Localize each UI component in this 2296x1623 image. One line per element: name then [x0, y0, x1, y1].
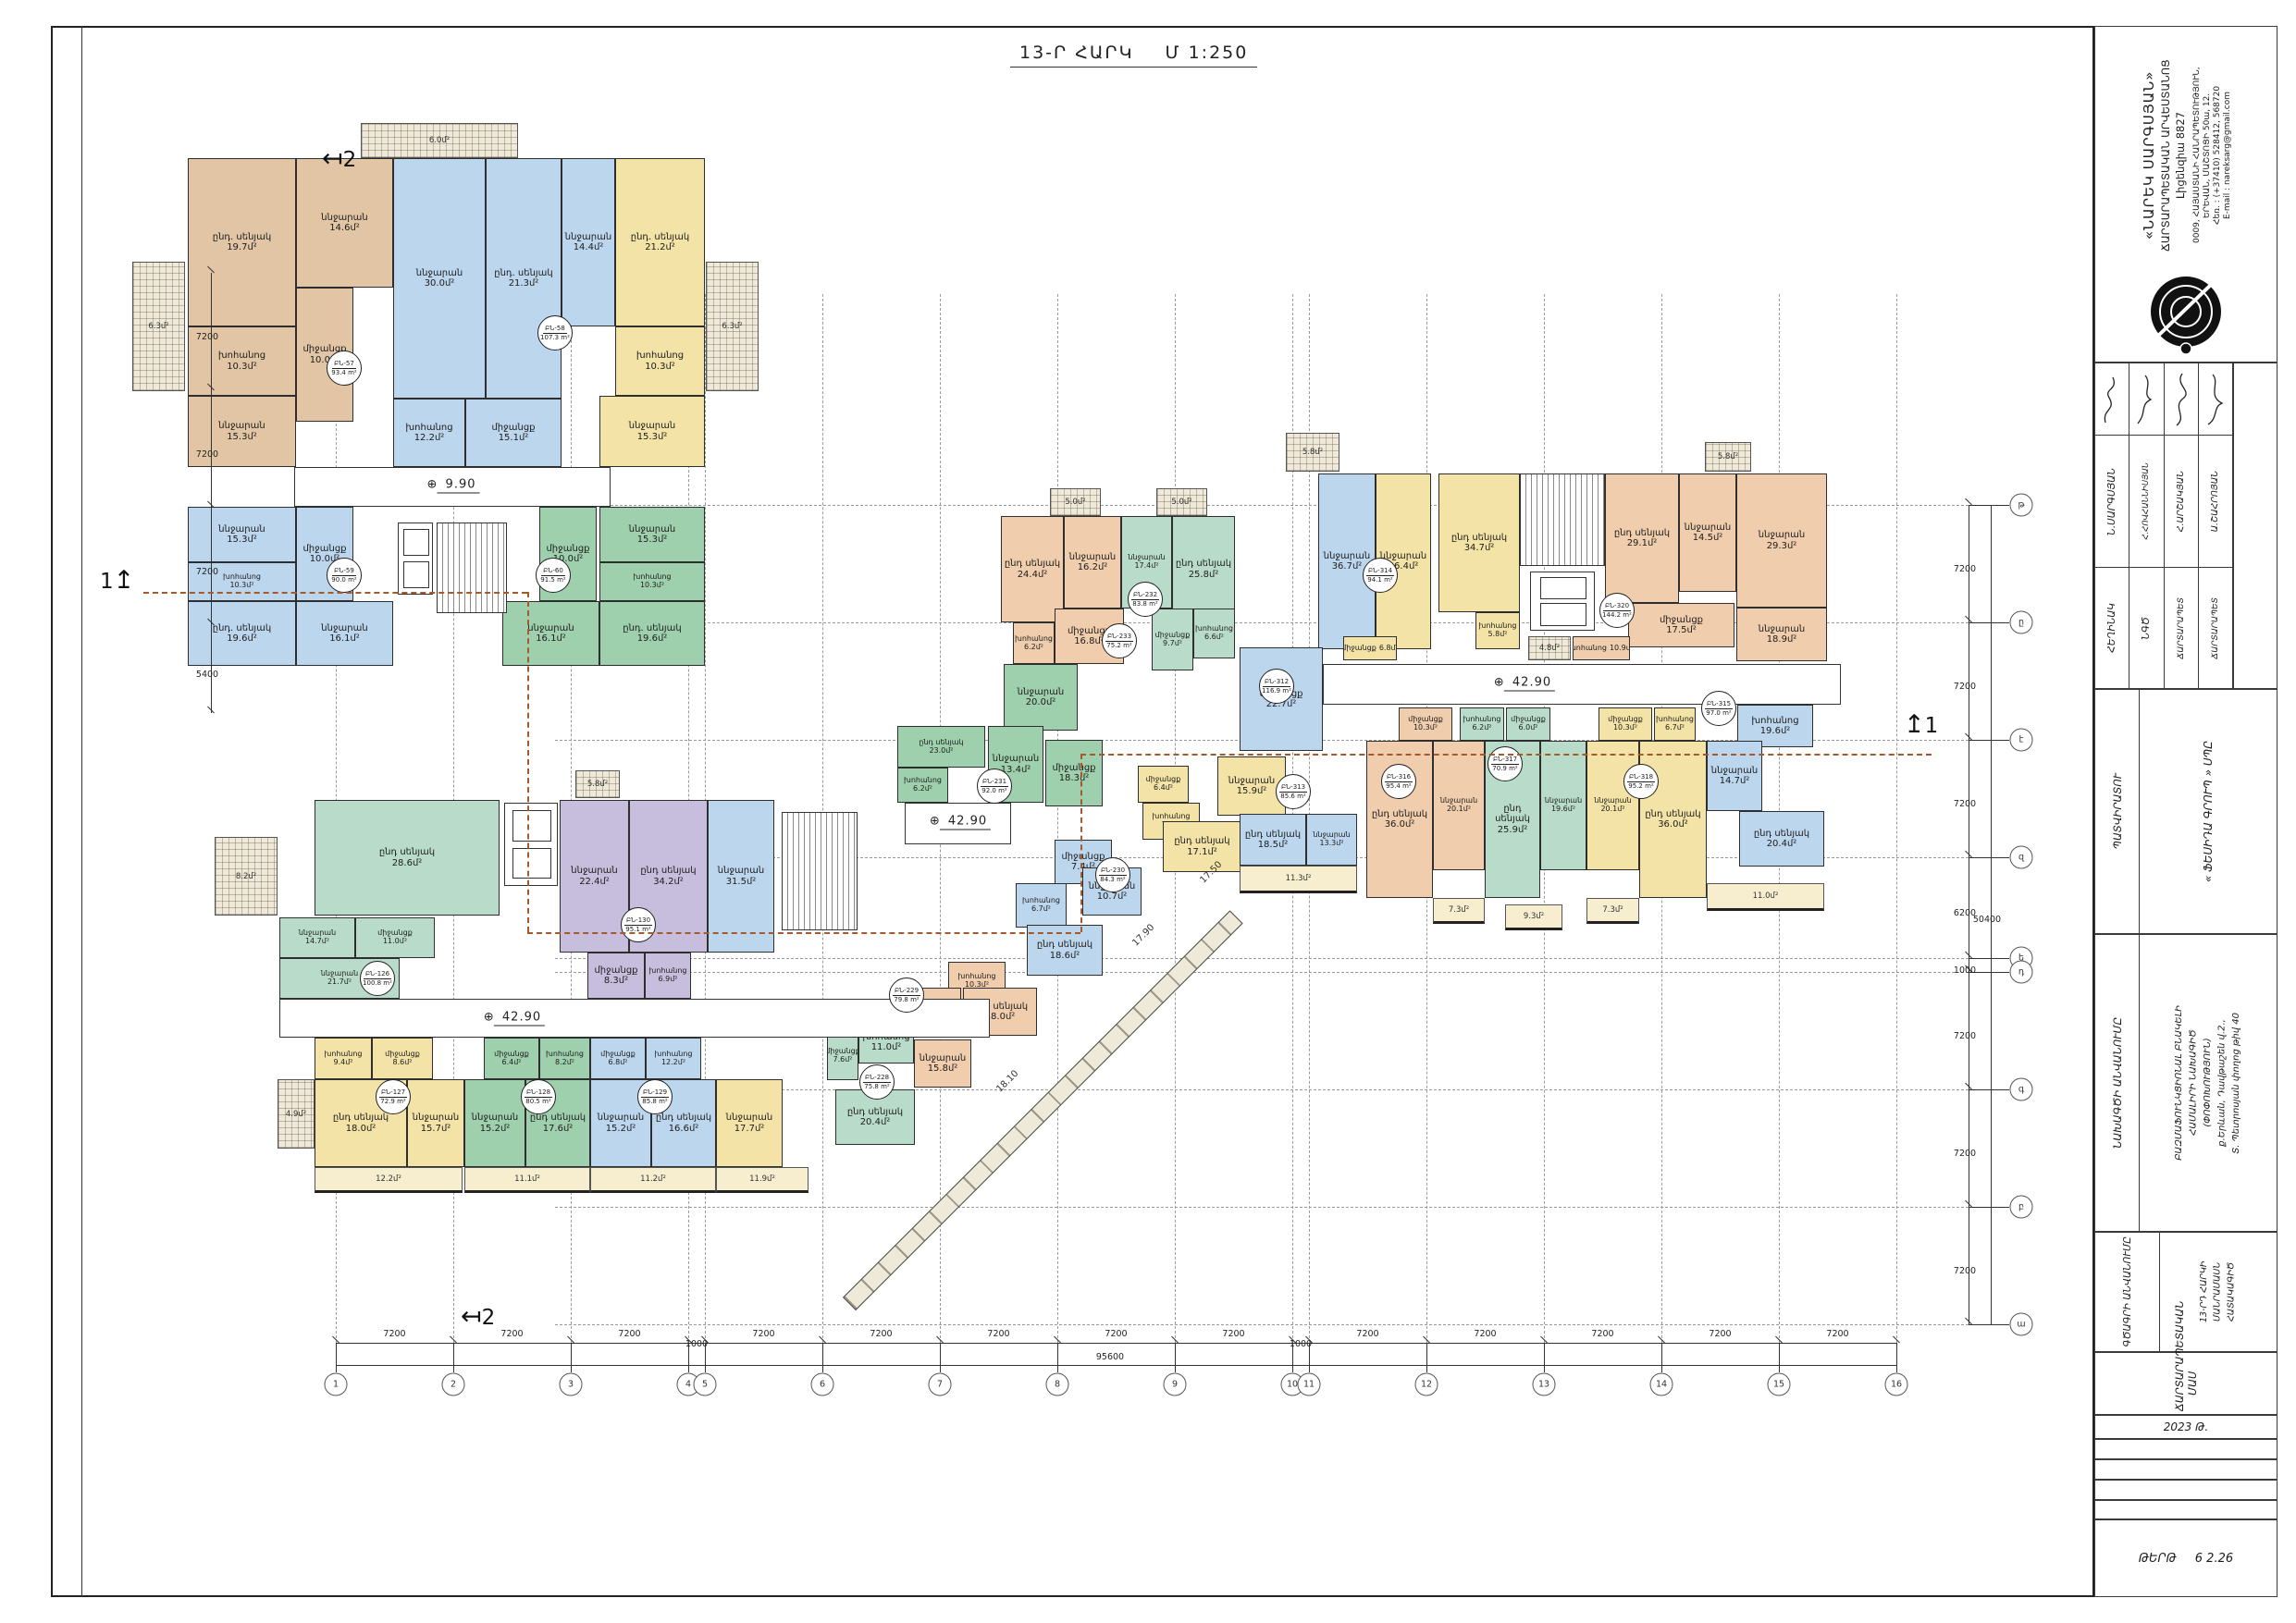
apartment-circle: ԲՆ-22979.8 m²	[889, 977, 924, 1013]
project-name: ԲԱԶՄԱՖՈՒՆԿՑԻՈՆԱԼ ԲՆԱԿԵԼԻ ՀԱՄԱԼԻՐԻ ՆԱԽԱԳԻ…	[2140, 935, 2277, 1231]
apartment-area: 72.9 m²	[380, 1098, 405, 1106]
person-role: ՃԱՐՏԱՐԱՊԵՏ	[2165, 568, 2198, 688]
apartment-area: 95.4 m²	[1386, 782, 1411, 791]
elevation-marker: ⊕ 9.90	[427, 478, 480, 492]
client-value: « ՖԵՍԻԴԱ ԳՐՈՒՊ » ՍՊԸ	[2140, 690, 2277, 933]
room-name: ննջարան	[1069, 552, 1116, 562]
apartment-circle: ԲՆ-31770.9 m²	[1487, 746, 1523, 781]
room-area: 6.8մ²	[609, 1059, 628, 1067]
balcony: 11.0մ²	[1707, 883, 1824, 911]
room: ննջարան20.1մ²	[1586, 741, 1639, 870]
room-name: խոհանոց	[636, 350, 684, 361]
apartment-circle: ԲՆ-31385.6 m²	[1276, 774, 1311, 809]
room: ննջարան16.1մ²	[502, 601, 599, 666]
room: ննջարան31.5մ²	[708, 800, 774, 953]
room-name: ննջարան	[218, 524, 265, 535]
dimension-label: 7200	[383, 1329, 405, 1339]
room: ննջարան36.7մ²	[1318, 473, 1376, 649]
elevator-cab	[512, 848, 550, 879]
grid-bubble: բ	[2010, 1196, 2033, 1219]
apartment-area: 84.3 m²	[1100, 876, 1125, 884]
room: միջանցք8.6մ²	[372, 1038, 433, 1079]
room-name: ննջարան	[598, 1113, 644, 1123]
room: ընդ. սենյակ19.6մ²	[599, 601, 705, 666]
room: միջանցք7.6մ²	[827, 1032, 858, 1080]
room-area: 18.6մ²	[1050, 951, 1080, 961]
elevation-symbol: ⊕	[484, 1011, 494, 1025]
elevation-marker: ⊕ 42.90	[930, 815, 991, 829]
room: ընդ սենյակ25.8մ²	[1172, 516, 1235, 622]
grid-extension	[1544, 1343, 1545, 1372]
room-area: 25.9մ²	[1498, 825, 1528, 835]
room-area: 10.3մ²	[640, 582, 664, 590]
dimension-label: 7200	[1474, 1329, 1496, 1339]
drawing-label: ԳԾԱԳՐԻ ԱՆՎԱՆՈՒՄԸ	[2095, 1233, 2160, 1351]
room: միջանցք11.0մ²	[355, 917, 435, 958]
room: ընդ. սենյակ19.6մ²	[188, 601, 296, 666]
room: ընդ. սենյակ19.7մ²	[188, 158, 296, 326]
signature-cell	[2129, 363, 2163, 436]
company-name: «ՆԱՐԵԿ ՍԱՐԳՍՅԱՆ»	[2141, 34, 2157, 277]
balcony: 5.0մ²	[1156, 488, 1207, 516]
apartment-circle: ԲՆ-22875.8 m²	[859, 1064, 895, 1100]
room-name: ննջարան	[726, 1113, 772, 1123]
room: խոհանոց6.2մ²	[897, 768, 948, 803]
room-area: 11.0մ²	[871, 1042, 902, 1052]
room-area: 15.1մ²	[499, 433, 529, 443]
room: ննջարան29.3մ²	[1736, 473, 1827, 608]
dimension-label: 5400	[196, 670, 218, 680]
person-column: Հ.ՀՈՎՀԱՆՆԻՍՅԱՆ ՆԳԾ	[2129, 363, 2164, 688]
room-area: 31.5մ²	[726, 877, 757, 887]
room: ննջարան14.4մ²	[562, 158, 615, 326]
room-name: ննջարան	[1018, 687, 1064, 697]
room-area: 17.7մ²	[734, 1124, 765, 1134]
grid-line-vertical	[1896, 294, 1897, 1343]
year-box: 2023 Թ.	[2094, 1415, 2277, 1439]
phone: Հեռ. : (+37410) 528412, 568720	[2213, 34, 2222, 277]
apartment-area: 90.0 m²	[331, 576, 356, 584]
room: ընդ սենյակ17.1մ²	[1163, 821, 1241, 872]
room-name: խոհանոց	[1573, 645, 1607, 653]
room-area: 18.5մ²	[1258, 840, 1289, 850]
drawing-sheet: 13-Ր ՀԱՐԿՄ 1:250 12345678910111213141516…	[0, 0, 2296, 1623]
apartment-area: 85.8 m²	[642, 1098, 667, 1106]
room-name: ննջարան	[1759, 530, 1805, 540]
room: միջանցք8.3մ²	[587, 953, 645, 999]
section-number: 2	[343, 148, 357, 172]
room-name: ննջարան	[1711, 766, 1758, 776]
room: միջանցք18.3մ²	[1045, 740, 1103, 806]
room-area: 16.1մ²	[329, 633, 360, 644]
grid-line-horizontal	[555, 958, 1969, 959]
section-cut-line	[527, 932, 1080, 934]
room: խոհանոց6.2մ²	[1013, 622, 1055, 664]
room-area: 7.6մ²	[833, 1056, 853, 1064]
room: միջանցք15.1մ²	[465, 399, 562, 467]
room-area: 12.2մ²	[414, 433, 445, 443]
balcony: 9.3մ²	[1505, 904, 1562, 930]
corridor	[279, 999, 990, 1038]
apartment-id: ԲՆ-312	[1263, 678, 1290, 687]
room-area: 20.1մ²	[1600, 805, 1624, 814]
grid-bubble: 3	[560, 1373, 583, 1396]
elevation-symbol: ⊕	[427, 478, 438, 492]
room-area: 12.2մ²	[661, 1059, 685, 1067]
room-area: 6.8մ²	[1379, 645, 1397, 653]
grid-bubble: 8	[1046, 1373, 1069, 1396]
apartment-area: 85.6 m²	[1280, 793, 1305, 801]
apartment-area: 75.2 m²	[1106, 642, 1131, 650]
apartment-circle: ԲՆ-126100.8 m²	[360, 961, 395, 996]
apartment-id: ԲՆ-233	[1105, 633, 1133, 642]
room: ընդ սենյակ24.4մ²	[1001, 516, 1064, 622]
grid-extension	[1057, 1343, 1058, 1372]
room: ննջարան15.3մ²	[599, 507, 705, 562]
apartment-area: 94.1 m²	[1367, 576, 1392, 584]
room-name: միջանցք	[1343, 645, 1376, 653]
room-area: 6.4մ²	[502, 1059, 522, 1067]
room-area: 15.7մ²	[421, 1124, 451, 1134]
room-area: 19.7մ²	[227, 242, 257, 252]
room: խոհանոց6.2մ²	[1460, 707, 1504, 741]
room-area: 29.1մ²	[1627, 538, 1658, 548]
room-name: միջանցք	[594, 965, 637, 976]
room-name: ընդ. սենյակ	[213, 623, 271, 633]
dimension-label: 7200	[1954, 564, 1976, 574]
apartment-circle: ԲՆ-58107.3 m²	[537, 315, 573, 350]
grid-bubble: թ	[2010, 494, 2033, 517]
room-name: ննջարան	[993, 754, 1039, 764]
section-marker: ↤2	[461, 1302, 495, 1331]
apartment-id: ԲՆ-228	[863, 1074, 891, 1083]
company-info: «ՆԱՐԵԿ ՍԱՐԳՍՅԱՆ» ՃԱՐՏԱՐԱՊԵՏԱԿԱՆ ԱՐՎԵՍՏԱՆ…	[2139, 34, 2233, 277]
grid-extension	[1661, 1343, 1662, 1372]
elevation-value: 9.90	[437, 478, 479, 494]
room-name: ննջարան	[718, 866, 764, 876]
room-name: ննջարան	[416, 268, 463, 278]
balcony: 4.9մ²	[278, 1079, 315, 1149]
balcony: 5.0մ²	[1050, 488, 1101, 516]
dimension-label: 1000	[685, 1339, 708, 1349]
elevation-marker: ⊕ 42.90	[484, 1011, 545, 1025]
dimension-total-line	[336, 1365, 1896, 1366]
apartment-area: 93.4 m²	[331, 369, 356, 377]
apartment-area: 75.8 m²	[864, 1083, 889, 1091]
room-area: 9.4մ²	[334, 1059, 353, 1067]
balcony: 7.3մ²	[1586, 898, 1639, 924]
room: խոհանոց10.9մ²	[1573, 636, 1630, 660]
room-name: խոհանոց	[1751, 716, 1798, 726]
grid-bubble: 11	[1298, 1373, 1321, 1396]
room-name: ընդ սենյակ	[1176, 559, 1231, 569]
room-name: ննջարան	[629, 524, 675, 535]
room-area: 8.2մ²	[555, 1059, 574, 1067]
room-area: 14.4մ²	[574, 242, 604, 252]
room: ննջարան13.3մ²	[1306, 814, 1357, 866]
grid-bubble: 16	[1885, 1373, 1908, 1396]
drawing-name-box: ԳԾԱԳՐԻ ԱՆՎԱՆՈՒՄԸ 13-ՐԴ ՀԱՐԿԻ ՄԱՆՐԱՄԱՍՆ Հ…	[2094, 1232, 2277, 1352]
dimension-label: 7200	[1222, 1329, 1244, 1339]
room-area: 23.0մ²	[929, 747, 953, 756]
room-area: 34.2մ²	[653, 877, 684, 887]
grid-bubble: 15	[1768, 1373, 1791, 1396]
room-name: ընդ սենյակ	[1037, 940, 1092, 950]
grid-bubble: 7	[929, 1373, 952, 1396]
apartment-id: ԲՆ-58	[543, 325, 567, 334]
person-role: ՀԵՂԻՆԱԿ	[2095, 568, 2129, 688]
apartment-id: ԲՆ-231	[981, 778, 1008, 787]
balcony: 11.2մ²	[590, 1167, 716, 1193]
room-name: ընդ սենյակ	[1451, 533, 1507, 543]
empty-row	[2094, 1459, 2277, 1480]
apartment-id: ԲՆ-314	[1366, 567, 1394, 576]
grid-extension	[1779, 1343, 1780, 1372]
apartment-id: ԲՆ-317	[1491, 756, 1519, 765]
room: ննջարան18.9մ²	[1736, 608, 1827, 661]
apartment-circle: ԲՆ-31597.0 m²	[1701, 691, 1736, 726]
grid-bubble: ը	[2010, 611, 2033, 634]
room-name: միջանցք	[1061, 852, 1105, 862]
apartment-area: 70.9 m²	[1492, 765, 1517, 773]
room-area: 15.8մ²	[928, 1064, 958, 1074]
room: խոհանոց10.3մ²	[615, 326, 705, 396]
balcony: 5.8մ²	[575, 770, 620, 798]
room: միջանցք17.5մ²	[1628, 603, 1734, 647]
apartment-id: ԲՆ-128	[525, 1088, 552, 1098]
apartment-circle: ԲՆ-23192.0 m²	[977, 768, 1012, 804]
room: միջանցք10.3մ²	[1399, 707, 1452, 741]
apartment-circle: ԲՆ-31494.1 m²	[1363, 558, 1398, 593]
signature	[2134, 372, 2158, 427]
elevation-symbol: ⊕	[930, 815, 940, 829]
room-name: ընդ սենյակ	[656, 1113, 711, 1123]
room-area: 13.3մ²	[1319, 840, 1343, 848]
room-area: 24.4մ²	[1018, 570, 1048, 580]
person-column: Հ.ԱՐՇԱԿՅԱՆ ՃԱՐՏԱՐԱՊԵՏ	[2165, 363, 2199, 688]
client-label: ՊԱՏՎԻՐԱՏՈՒ	[2095, 690, 2140, 933]
room-name: ննջարան	[629, 421, 675, 431]
dimension-label: 1000	[1290, 1339, 1312, 1349]
apartment-circle: ԲՆ-13095.1 m²	[621, 907, 656, 942]
room-area: 10.3մ²	[1413, 724, 1438, 732]
signature	[2169, 372, 2193, 427]
room-area: 11.0մ²	[383, 938, 407, 946]
section-arrow-icon: ↤	[322, 144, 343, 173]
grid-extension	[336, 1343, 337, 1372]
sheet-label: ԹԵՐԹ	[2139, 1552, 2177, 1566]
room-area: 19.6մ²	[1551, 805, 1575, 814]
room-name: ննջարան	[1228, 776, 1275, 786]
signature	[2203, 372, 2228, 427]
room-area: 8.6մ²	[393, 1059, 413, 1067]
dimension-label: 7200	[196, 332, 218, 342]
room-area: 21.3մ²	[509, 278, 539, 289]
grid-extension	[1426, 1343, 1427, 1372]
room-area: 6.4մ²	[1154, 784, 1173, 793]
room: ննջարան15.2մ²	[464, 1079, 525, 1167]
room-area: 36.7մ²	[1332, 561, 1363, 572]
empty-row	[2094, 1480, 2277, 1500]
room-name: ննջարան	[571, 866, 617, 876]
room-area: 20.4մ²	[860, 1117, 891, 1127]
dimension-label: 7200	[196, 449, 218, 460]
room: ընդ սենյակ29.1մ²	[1605, 473, 1679, 603]
room-name: ննջարան	[920, 1053, 966, 1064]
room-name: ընդ սենյակ	[379, 847, 435, 857]
apartment-circle: ԲՆ-12772.9 m²	[376, 1079, 411, 1114]
apartment-id: ԲՆ-316	[1385, 773, 1413, 782]
balcony: 6.0մ²	[361, 123, 518, 158]
grid-extension	[1175, 1343, 1176, 1372]
section-number: 1	[100, 570, 114, 594]
room-name: ննջարան	[1685, 523, 1731, 533]
room-area: 20.1մ²	[1447, 805, 1471, 814]
room-area: 10.3մ²	[1613, 724, 1637, 732]
grid-bubble: 9	[1164, 1373, 1187, 1396]
room-area: 20.0մ²	[1026, 697, 1056, 707]
dimension-label: 7200	[196, 567, 218, 577]
apartment-area: 80.5 m²	[525, 1098, 550, 1106]
dimension-label: 7200	[1591, 1329, 1613, 1339]
apartment-circle: ԲՆ-6091.5 m²	[536, 558, 571, 593]
apartment-circle: ԲՆ-31695.4 m²	[1381, 764, 1416, 799]
empty-row	[2094, 1500, 2277, 1519]
room-area: 21.7մ²	[327, 978, 352, 987]
room: միջանցք6.0մ²	[1506, 707, 1550, 741]
room: ընդ. սենյակ21.2մ²	[615, 158, 705, 326]
floor-plan: 1234567891011121314151672007200720010007…	[0, 0, 2296, 1623]
room-area: 14.7մ²	[305, 938, 329, 946]
grid-line-horizontal	[555, 1324, 1969, 1325]
elevator-cab	[403, 529, 428, 556]
grid-extension	[1969, 505, 2009, 506]
apartment-circle: ԲՆ-23283.8 m²	[1128, 582, 1163, 617]
room: միջանցք9.7մ²	[1152, 609, 1193, 670]
grid-bubble: զ	[2010, 846, 2033, 869]
grid-extension	[940, 1343, 941, 1372]
dimension-label: 7200	[1954, 682, 1976, 692]
room-area: 16.1մ²	[536, 633, 566, 644]
room-name: միջանցք	[1052, 763, 1095, 773]
grid-extension	[1969, 958, 2009, 959]
address2: ԵՐԵՎԱՆ, ՄԱՇՏՈՑԻ 50ա, 12.	[2203, 34, 2212, 277]
apartment-circle: ԲՆ-5990.0 m²	[327, 558, 362, 593]
room-name: ընդ. սենյակ	[213, 232, 271, 242]
room-name: ննջարան	[413, 1113, 459, 1123]
room: ընդ սենյակ34.7մ²	[1438, 473, 1520, 612]
room-area: 28.6մ²	[392, 858, 423, 868]
balcony: 5.8մ²	[1705, 442, 1751, 472]
dimension-label: 7200	[1105, 1329, 1127, 1339]
room-name: ընդ սենյակ	[1005, 559, 1060, 569]
room: ընդ սենյակ18.5մ²	[1240, 814, 1306, 866]
grid-bubble: 1	[325, 1373, 348, 1396]
room-name: ընդ սենյակ	[1614, 528, 1670, 538]
apartment-id: ԲՆ-232	[1131, 591, 1159, 600]
room-area: 14.5մ²	[1693, 533, 1723, 543]
room-area: 10.3մ²	[645, 362, 675, 372]
room-name: ընդ սենյակ	[1245, 830, 1301, 840]
project-label: ՆԱԽԱԳԾԻ ԱՆՎԱՆՈՒՄԸ	[2095, 935, 2140, 1231]
room: ննջարան14.5մ²	[1679, 473, 1736, 592]
grid-extension	[1969, 622, 2009, 623]
room-area: 17.1մ²	[1187, 847, 1217, 857]
room: խոհանոց6.7մ²	[1654, 707, 1696, 741]
grid-bubble: գ	[2010, 1078, 2033, 1101]
room: միջանցք10.3մ²	[1599, 707, 1652, 741]
section-cut-line	[527, 592, 529, 932]
room: ննջարան17.7մ²	[716, 1079, 783, 1167]
dimension-label: 1000	[1954, 965, 1976, 976]
section-marker: ↥1	[1904, 710, 1938, 739]
room-area: 16.2մ²	[1078, 562, 1108, 572]
room-area: 6.9մ²	[659, 976, 678, 984]
grid-extension	[822, 1343, 823, 1372]
apartment-area: 92.0 m²	[981, 787, 1006, 795]
dimension-label: 7200	[1709, 1329, 1731, 1339]
apartment-area: 95.2 m²	[1628, 782, 1653, 791]
apartment-area: 79.8 m²	[894, 996, 919, 1004]
dimension-label: 7200	[1954, 1031, 1976, 1041]
elevator-cab	[512, 810, 550, 842]
room: խոհանոց6.9մ²	[645, 953, 691, 999]
grid-bubble: 13	[1533, 1373, 1556, 1396]
person-role: ՆԳԾ	[2129, 568, 2163, 688]
balcony: 6.3մ²	[132, 262, 185, 391]
empty-row	[2094, 1439, 2277, 1459]
room-area: 16.8մ²	[1074, 636, 1105, 646]
room: ննջարան14.6մ²	[296, 158, 393, 288]
room: ննջարան16.1մ²	[296, 601, 393, 666]
apartment-area: 100.8 m²	[363, 979, 392, 988]
apartment-area: 116.9 m²	[1262, 687, 1291, 695]
personnel-empty-column	[2233, 363, 2277, 689]
room-area: 14.6մ²	[329, 223, 360, 233]
room-area: 25.8մ²	[1189, 570, 1219, 580]
room-area: 18.3մ²	[1059, 773, 1090, 783]
room-area: 14.7մ²	[1720, 776, 1750, 786]
room-area: 6.2մ²	[913, 785, 932, 793]
room-area: 15.2մ²	[606, 1124, 636, 1134]
person-name: Ն.ՍԱՐԳՍՅԱՆ	[2095, 436, 2129, 568]
room-area: 34.7մ²	[1464, 543, 1495, 553]
room-name: ննջարան	[321, 623, 367, 633]
apartment-circle: ԲՆ-312116.9 m²	[1259, 669, 1294, 704]
apartment-id: ԲՆ-229	[893, 987, 920, 996]
apartment-id: ԲՆ-313	[1279, 783, 1307, 793]
grid-line-vertical	[1057, 294, 1058, 1343]
dimension-label: 7200	[1356, 1329, 1378, 1339]
studio-logo	[2143, 271, 2228, 356]
apartment-id: ԲՆ-126	[364, 970, 391, 979]
balcony: 12.2մ²	[315, 1167, 463, 1193]
elevation-marker: ⊕ 42.90	[1494, 676, 1555, 690]
room: ննջարան14.7մ²	[1707, 741, 1762, 811]
room-name: ընդ սենյակ	[1645, 809, 1700, 819]
person-name: Ա.ՇԱՀՐՈՅԱՆ	[2199, 436, 2232, 568]
dimension-label: 7200	[618, 1329, 640, 1339]
apartment-circle: ԲՆ-23375.2 m²	[1102, 623, 1137, 658]
license: Լիցենզիա 8827	[2174, 34, 2187, 277]
apartment-circle: ԲՆ-31895.2 m²	[1623, 764, 1659, 799]
client-box: ՊԱՏՎԻՐԱՏՈՒ « ՖԵՍԻԴԱ ԳՐՈՒՊ » ՍՊԸ	[2094, 689, 2277, 934]
room-area: 17.5մ²	[1666, 625, 1697, 635]
part-box: ՃԱՐՏԱՐԱՊԵՏԱԿԱՆ ՄԱՍ	[2094, 1352, 2277, 1415]
room-area: 10.9մ²	[1610, 645, 1630, 653]
room: ննջարան15.3մ²	[188, 507, 296, 562]
balcony: 5.8մ²	[1286, 433, 1339, 472]
